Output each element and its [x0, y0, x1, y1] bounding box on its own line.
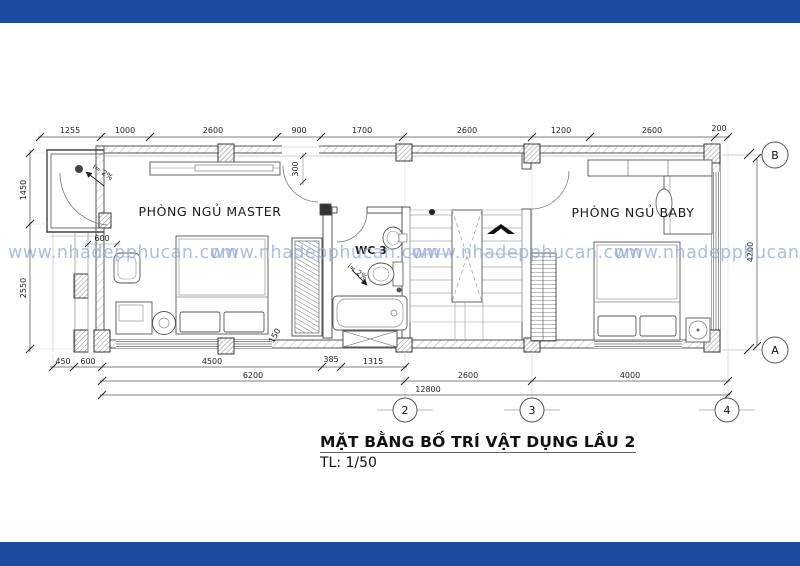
- title-block: MẶT BẰNG BỐ TRÍ VẬT DỤNG LẦU 2 TL: 1/50: [320, 433, 636, 471]
- stool-master: [153, 312, 176, 335]
- watermark-text: www.nhadepphucan.com: [614, 243, 800, 263]
- dim-bottom-4000: 4000: [620, 371, 640, 380]
- wc-slope-label: i= 2%: [346, 261, 370, 282]
- dim-bottom-450: 450: [55, 357, 70, 366]
- planter-box: [343, 331, 397, 347]
- watermark-text: www.nhadepphucan.com: [8, 243, 238, 263]
- dim-bottom-12800: 12800: [415, 385, 440, 394]
- staircase: [410, 209, 522, 340]
- wardrobe-baby: [588, 160, 712, 176]
- dim-top-3: 900: [291, 126, 306, 135]
- wc-room: [333, 212, 407, 347]
- floor-plan-drawing: i= 2% PHÒNG: [0, 0, 800, 566]
- grid-bubble-B: B: [771, 149, 779, 162]
- baby-room-label: PHÒNG NGỦ BABY: [572, 204, 695, 220]
- dim-bottom: 450 600 4500 385 1315 6200 2600 4000 128…: [49, 350, 732, 399]
- dim-top-4: 1700: [352, 126, 372, 135]
- desk-master: [116, 302, 152, 334]
- dim-top-7: 2600: [642, 126, 662, 135]
- drawing-title: MẶT BẰNG BỐ TRÍ VẬT DỤNG LẦU 2: [320, 433, 636, 453]
- bathtub-icon: [333, 296, 407, 330]
- floor-drain-icon: [75, 165, 83, 173]
- dim-left-2550: 2550: [19, 278, 28, 298]
- dim-left-1450: 1450: [19, 180, 28, 200]
- grid-bubble-A: A: [771, 344, 779, 357]
- watermark-text: www.nhadepphucan.com: [412, 243, 642, 263]
- stair-direction-arrow-icon: [487, 224, 515, 234]
- dim-door-300: 300: [291, 161, 300, 176]
- window-master-south: [116, 340, 272, 348]
- dim-bottom-6200: 6200: [243, 371, 263, 380]
- master-room-label: PHÒNG NGỦ MASTER: [138, 203, 281, 219]
- baby-door-arc: [531, 171, 569, 209]
- toilet-icon: [368, 262, 403, 286]
- dim-balcony-600: 600: [94, 234, 109, 243]
- dim-bottom-4500: 4500: [202, 357, 222, 366]
- dim-bottom-2600: 2600: [458, 371, 478, 380]
- window-baby-south: [594, 340, 682, 348]
- wc-door-arc: [337, 212, 367, 242]
- handrail-start-dot: [429, 209, 435, 215]
- grid-bubbles: 2 3 4 B A: [377, 142, 788, 422]
- dim-bottom-1315: 1315: [363, 357, 383, 366]
- dim-top-8: 200: [711, 124, 726, 133]
- dim-top-6: 1200: [551, 126, 571, 135]
- dim-top-0: 1255: [60, 126, 80, 135]
- grid-bubble-3: 3: [529, 404, 536, 417]
- watermark-row: www.nhadepphucan.com www.nhadepphucan.co…: [8, 243, 800, 263]
- wc-drain-icon: [397, 288, 402, 293]
- dim-top-1: 1000: [115, 126, 135, 135]
- dim-bottom-385: 385: [323, 355, 338, 364]
- dim-top: 1255 1000 2600 900 1700 2600 1200 2600 2…: [36, 124, 732, 148]
- dim-bottom-600: 600: [80, 357, 95, 366]
- shelf-baby: [531, 253, 556, 341]
- grid-bubble-4: 4: [724, 404, 731, 417]
- drawing-scale: TL: 1/50: [320, 455, 636, 471]
- watermark-text: www.nhadepphucan.com: [210, 243, 440, 263]
- wardrobe-master: [150, 162, 280, 175]
- stool-baby: [686, 318, 710, 342]
- grid-bubble-2: 2: [402, 404, 409, 417]
- dim-top-2: 2600: [203, 126, 223, 135]
- dim-top-5: 2600: [457, 126, 477, 135]
